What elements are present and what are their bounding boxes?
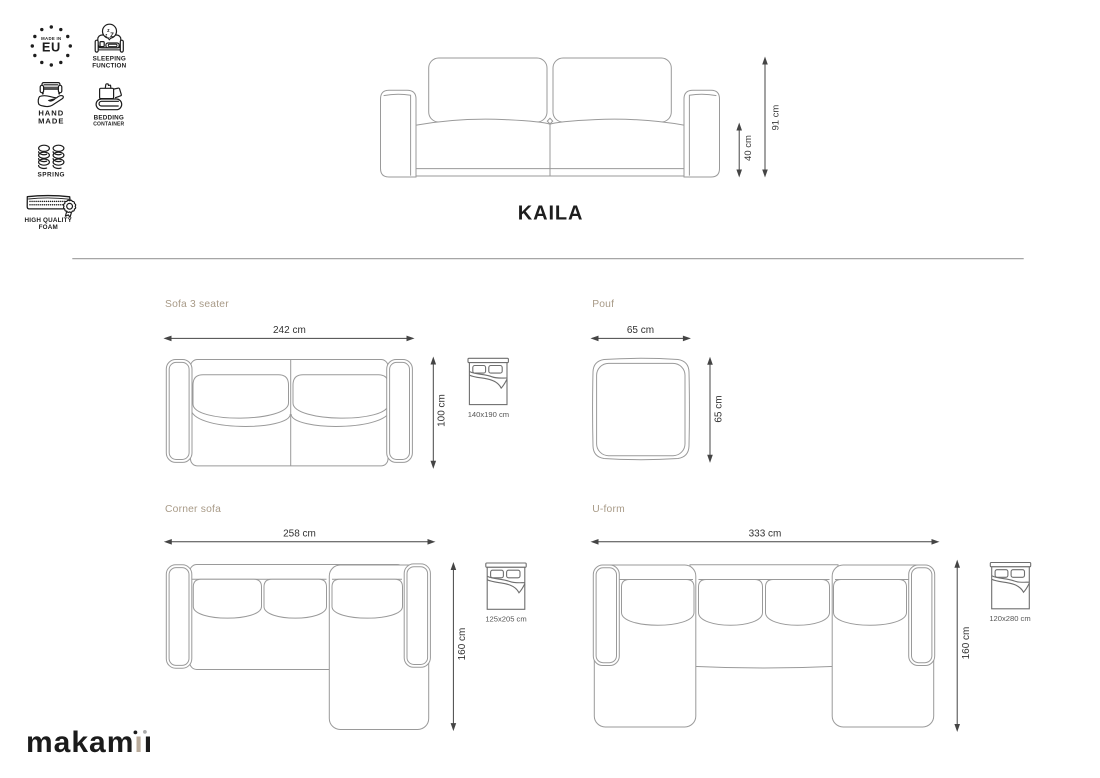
- svg-text:333 cm: 333 cm: [749, 529, 782, 540]
- svg-text:FOAM: FOAM: [39, 224, 58, 231]
- svg-text:EU: EU: [42, 40, 61, 55]
- svg-text:65 cm: 65 cm: [714, 395, 725, 422]
- svg-text:125x205 cm: 125x205 cm: [485, 615, 526, 624]
- svg-text:65 cm: 65 cm: [627, 325, 654, 336]
- svg-text:MADE: MADE: [38, 117, 64, 126]
- svg-text:SPRING: SPRING: [38, 172, 66, 179]
- svg-text:258 cm: 258 cm: [283, 529, 316, 540]
- svg-text:160 cm: 160 cm: [457, 628, 468, 661]
- svg-text:Sofa 3 seater: Sofa 3 seater: [165, 299, 229, 310]
- svg-text:z: z: [105, 32, 107, 37]
- svg-text:Z: Z: [110, 32, 114, 39]
- svg-text:KAILA: KAILA: [518, 203, 584, 225]
- svg-text:U-form: U-form: [592, 504, 625, 515]
- svg-text:Pouf: Pouf: [592, 299, 614, 310]
- svg-text:makamıı: makamıı: [26, 726, 153, 759]
- svg-text:140x190 cm: 140x190 cm: [468, 410, 509, 419]
- svg-text:242 cm: 242 cm: [273, 325, 306, 336]
- svg-text:CONTAINER: CONTAINER: [93, 121, 124, 127]
- svg-text:120x280 cm: 120x280 cm: [989, 614, 1030, 623]
- svg-text:40 cm: 40 cm: [743, 135, 754, 161]
- svg-text:160 cm: 160 cm: [961, 627, 972, 660]
- svg-text:Corner sofa: Corner sofa: [165, 504, 221, 515]
- svg-text:FUNCTION: FUNCTION: [92, 62, 126, 69]
- svg-text:HIGH QUALITY: HIGH QUALITY: [25, 217, 73, 224]
- svg-text:91 cm: 91 cm: [770, 105, 781, 131]
- svg-text:100 cm: 100 cm: [437, 394, 448, 427]
